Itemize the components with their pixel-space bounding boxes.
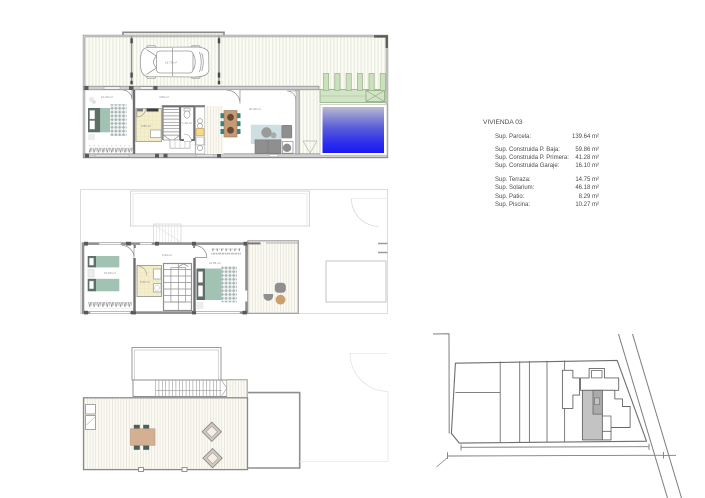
svg-text:16.70 m²: 16.70 m² — [165, 61, 177, 65]
svg-text:41.28 m²: 41.28 m² — [575, 155, 599, 161]
svg-text:3.80 m²: 3.80 m² — [141, 124, 151, 128]
svg-text:Sup. Terraza:: Sup. Terraza: — [495, 177, 531, 183]
svg-text:Sup. Patio:: Sup. Patio: — [495, 194, 525, 200]
svg-text:Sup. Solarium:: Sup. Solarium: — [495, 185, 535, 191]
svg-text:10.60 m²: 10.60 m² — [104, 271, 116, 275]
svg-text:14.75 m²: 14.75 m² — [575, 177, 599, 183]
svg-text:20.30 m²: 20.30 m² — [249, 107, 261, 111]
svg-text:2.94 m²: 2.94 m² — [162, 253, 172, 257]
svg-text:Sup. Piscina:: Sup. Piscina: — [495, 202, 530, 208]
svg-text:59.86 m²: 59.86 m² — [575, 147, 599, 153]
svg-text:5.20 m²: 5.20 m² — [140, 280, 150, 284]
svg-text:8.29 m²: 8.29 m² — [579, 194, 599, 200]
svg-text:4.50 m²: 4.50 m² — [159, 95, 169, 99]
svg-text:Sup. Construida P. Baja:: Sup. Construida P. Baja: — [495, 147, 560, 153]
svg-text:1.40 m²: 1.40 m² — [182, 121, 192, 125]
svg-text:139.64 m²: 139.64 m² — [572, 134, 599, 140]
svg-text:Sup. Construida P. Primera:: Sup. Construida P. Primera: — [495, 155, 569, 161]
svg-text:10.29 m²: 10.29 m² — [101, 95, 113, 99]
svg-text:11.95 m²: 11.95 m² — [209, 261, 221, 265]
svg-text:46.18 m²: 46.18 m² — [575, 185, 599, 191]
svg-text:16.10 m²: 16.10 m² — [575, 163, 599, 169]
svg-text:Sup. Construida Garaje:: Sup. Construida Garaje: — [495, 163, 560, 169]
svg-text:10.27 m²: 10.27 m² — [575, 202, 599, 208]
svg-text:Sup. Parcela:: Sup. Parcela: — [495, 134, 531, 140]
svg-text:VIVIENDA 03: VIVIENDA 03 — [483, 119, 523, 126]
